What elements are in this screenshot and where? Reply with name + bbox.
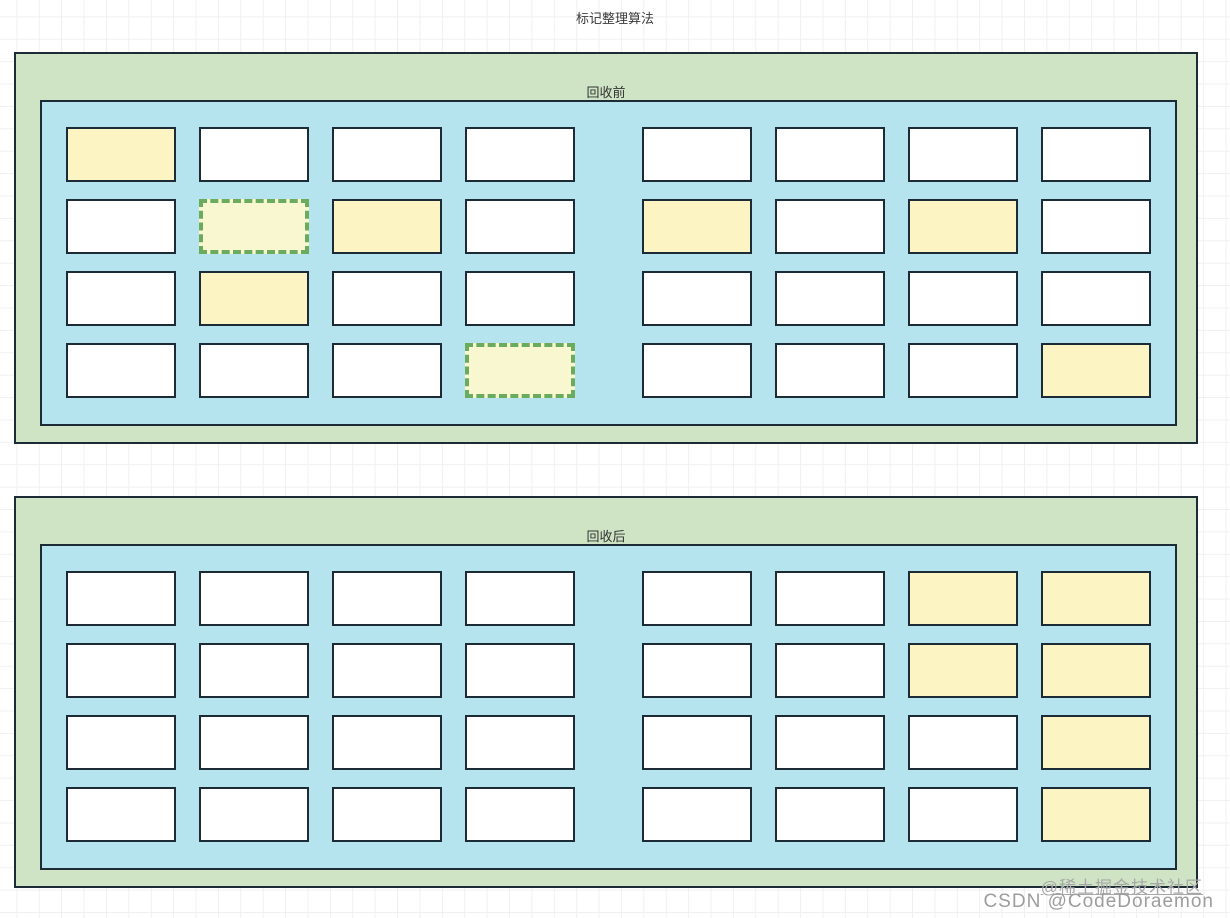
memory-block-free (642, 787, 752, 842)
memory-block-free (908, 715, 1018, 770)
memory-block-live (1041, 571, 1151, 626)
memory-row (66, 571, 1151, 626)
memory-block-free (642, 643, 752, 698)
memory-block-free (66, 715, 176, 770)
memory-block-free (465, 571, 575, 626)
memory-row (66, 643, 1151, 698)
memory-block-free (908, 127, 1018, 182)
memory-block-free (199, 343, 309, 398)
memory-row (66, 127, 1151, 182)
memory-block-live (1041, 343, 1151, 398)
memory-block-free (908, 787, 1018, 842)
memory-block-live (642, 199, 752, 254)
memory-block-free (332, 127, 442, 182)
memory-block-free (332, 571, 442, 626)
panel-before-gc: 回收前 (14, 52, 1198, 444)
memory-block-free (332, 343, 442, 398)
memory-block-free (332, 271, 442, 326)
memory-block-live (1041, 787, 1151, 842)
panel-after-label: 回收后 (16, 526, 1196, 545)
memory-block-free (775, 715, 885, 770)
memory-block-free (775, 343, 885, 398)
memory-row (66, 787, 1151, 842)
memory-block-free (465, 199, 575, 254)
memory-block-free (1041, 199, 1151, 254)
memory-block-free (66, 271, 176, 326)
diagram-title: 标记整理算法 (0, 8, 1230, 27)
memory-block-free (199, 643, 309, 698)
memory-block-live (908, 571, 1018, 626)
memory-block-free (642, 715, 752, 770)
memory-block-free (1041, 127, 1151, 182)
memory-block-live (908, 199, 1018, 254)
memory-block-free (66, 643, 176, 698)
memory-block-garbage (465, 343, 575, 398)
memory-block-free (66, 787, 176, 842)
memory-block-free (1041, 271, 1151, 326)
memory-block-free (908, 271, 1018, 326)
panel-before-label: 回收前 (16, 82, 1196, 101)
memory-block-free (199, 127, 309, 182)
memory-block-free (66, 571, 176, 626)
memory-block-free (199, 715, 309, 770)
memory-grid-before (66, 127, 1151, 398)
memory-block-garbage (199, 199, 309, 254)
memory-block-free (908, 343, 1018, 398)
memory-block-free (465, 271, 575, 326)
memory-block-free (775, 787, 885, 842)
watermark-csdn: CSDN @CodeDoraemon (983, 891, 1214, 913)
memory-block-live (1041, 643, 1151, 698)
memory-block-free (465, 787, 575, 842)
memory-block-live (199, 271, 309, 326)
memory-block-free (199, 787, 309, 842)
memory-block-free (642, 127, 752, 182)
memory-block-free (642, 571, 752, 626)
memory-region-before (40, 100, 1177, 426)
memory-block-free (465, 715, 575, 770)
canvas: 标记整理算法 回收前 回收后 @稀土掘金技术社区 CSDN @CodeDorae… (0, 0, 1230, 918)
memory-grid-after (66, 571, 1151, 842)
memory-row (66, 715, 1151, 770)
memory-block-live (66, 127, 176, 182)
memory-block-free (642, 343, 752, 398)
memory-block-free (66, 343, 176, 398)
memory-block-free (642, 271, 752, 326)
memory-block-live (1041, 715, 1151, 770)
memory-block-free (332, 643, 442, 698)
memory-block-free (465, 127, 575, 182)
memory-region-after (40, 544, 1177, 870)
memory-block-free (775, 271, 885, 326)
panel-after-gc: 回收后 (14, 496, 1198, 888)
memory-block-free (66, 199, 176, 254)
memory-row (66, 271, 1151, 326)
memory-block-live (332, 199, 442, 254)
memory-block-free (775, 571, 885, 626)
memory-block-free (465, 643, 575, 698)
memory-row (66, 343, 1151, 398)
memory-block-free (775, 199, 885, 254)
memory-block-free (775, 127, 885, 182)
memory-block-free (775, 643, 885, 698)
memory-block-free (332, 787, 442, 842)
memory-block-free (332, 715, 442, 770)
memory-block-live (908, 643, 1018, 698)
memory-row (66, 199, 1151, 254)
memory-block-free (199, 571, 309, 626)
